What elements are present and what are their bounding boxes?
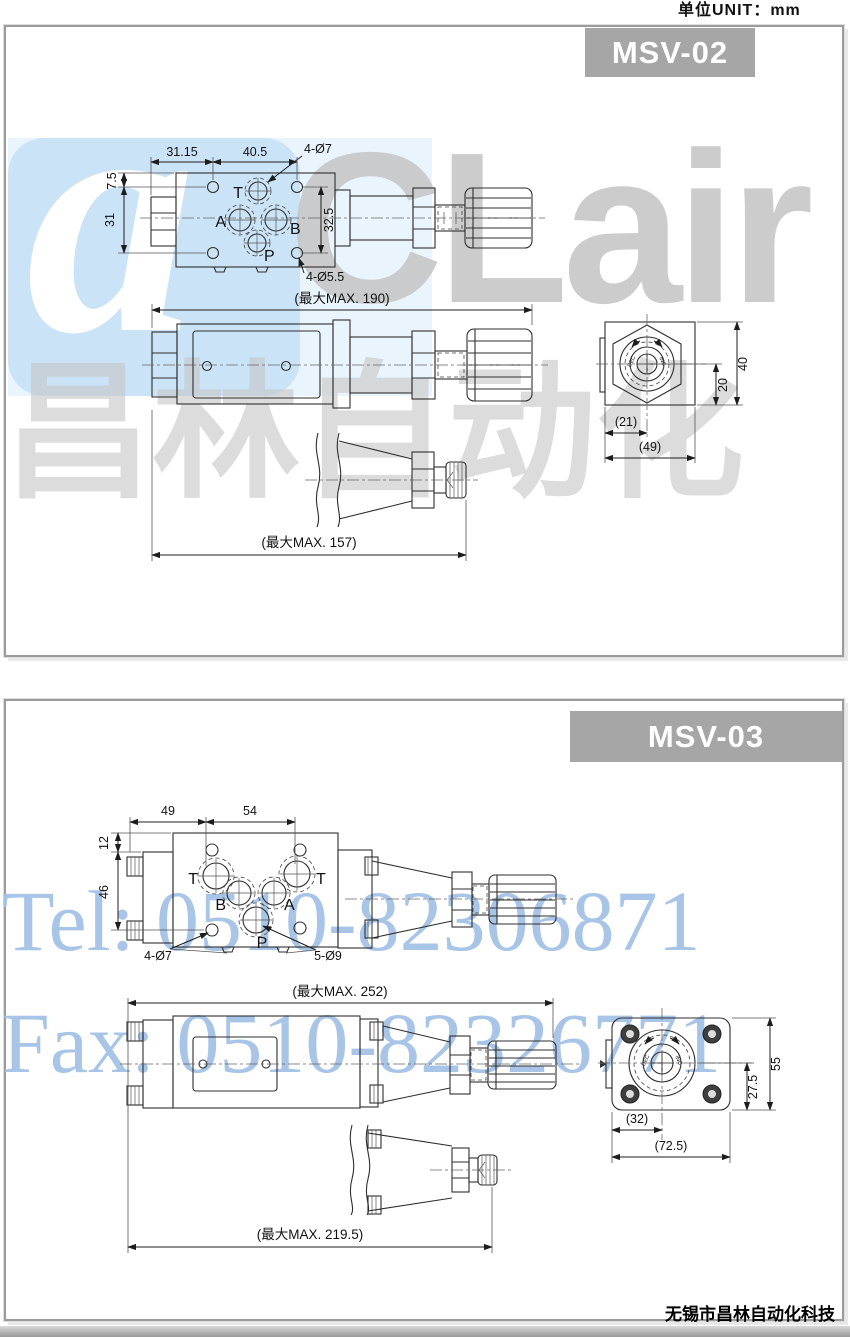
model-badge-msv03: MSV-03 <box>570 711 842 762</box>
company-footer: 无锡市昌林自动化科技 <box>665 1300 835 1325</box>
panel-msv02 <box>4 25 844 657</box>
unit-label: 单位UNIT：mm <box>678 0 801 20</box>
datasheet-page: a CLair 昌林自动化 Tel: 0510-82306871 Fax: 05… <box>0 0 850 1337</box>
panel-msv03 <box>4 699 844 1321</box>
model-badge-msv02: MSV-02 <box>585 28 755 77</box>
page-bottom-strip <box>0 1326 850 1337</box>
